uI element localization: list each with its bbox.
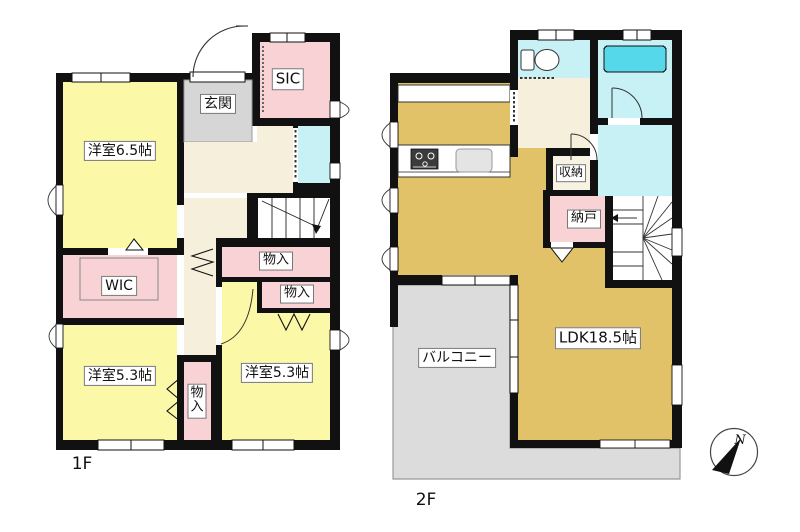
room-label-mono2: 物入	[280, 285, 314, 304]
sink	[456, 149, 492, 172]
room-label-bedroom53l: 洋室5.3帖	[84, 366, 156, 386]
room-label-genkan: 玄関	[200, 94, 236, 114]
room-bedroom65	[63, 82, 177, 248]
compass: N	[711, 429, 758, 476]
room-washroom	[598, 125, 672, 196]
hallway-2f	[518, 78, 590, 148]
floor-label-2f: 2F	[416, 490, 437, 510]
bathtub	[604, 46, 666, 72]
floor-2f	[382, 30, 682, 479]
room-label-mono1: 物入	[259, 252, 293, 271]
entrance-door	[190, 72, 245, 82]
room-label-ldk: LDK18.5帖	[555, 327, 641, 349]
room-label-bedroom65: 洋室6.5帖	[84, 141, 156, 161]
room-label-mono-v: 物入	[188, 384, 207, 419]
room-label-shuno: 収納	[556, 164, 586, 182]
stairs-2f	[613, 196, 672, 280]
kitchen-counter-wall	[398, 85, 510, 102]
toilet-fixture	[521, 50, 559, 71]
compass-north-label: N	[733, 433, 746, 448]
floor-plan-svg: N	[0, 0, 800, 532]
floor-label-1f: 1F	[72, 454, 93, 474]
room-label-nando: 納戸	[567, 210, 601, 229]
room-label-bedroom53r: 洋室5.3帖	[241, 363, 313, 383]
room-label-wic: WIC	[101, 276, 137, 296]
room-label-balcony: バルコニー	[418, 348, 496, 368]
room-label-sic: SIC	[272, 68, 304, 90]
stove-icon	[411, 149, 438, 169]
hallway-1f	[184, 142, 293, 193]
room-toilet-1f	[298, 126, 330, 183]
floor-plan: N 洋室6.5帖 玄関 SIC WIC 物入 物入 洋室5.3帖 洋室5.3帖 …	[0, 0, 800, 532]
